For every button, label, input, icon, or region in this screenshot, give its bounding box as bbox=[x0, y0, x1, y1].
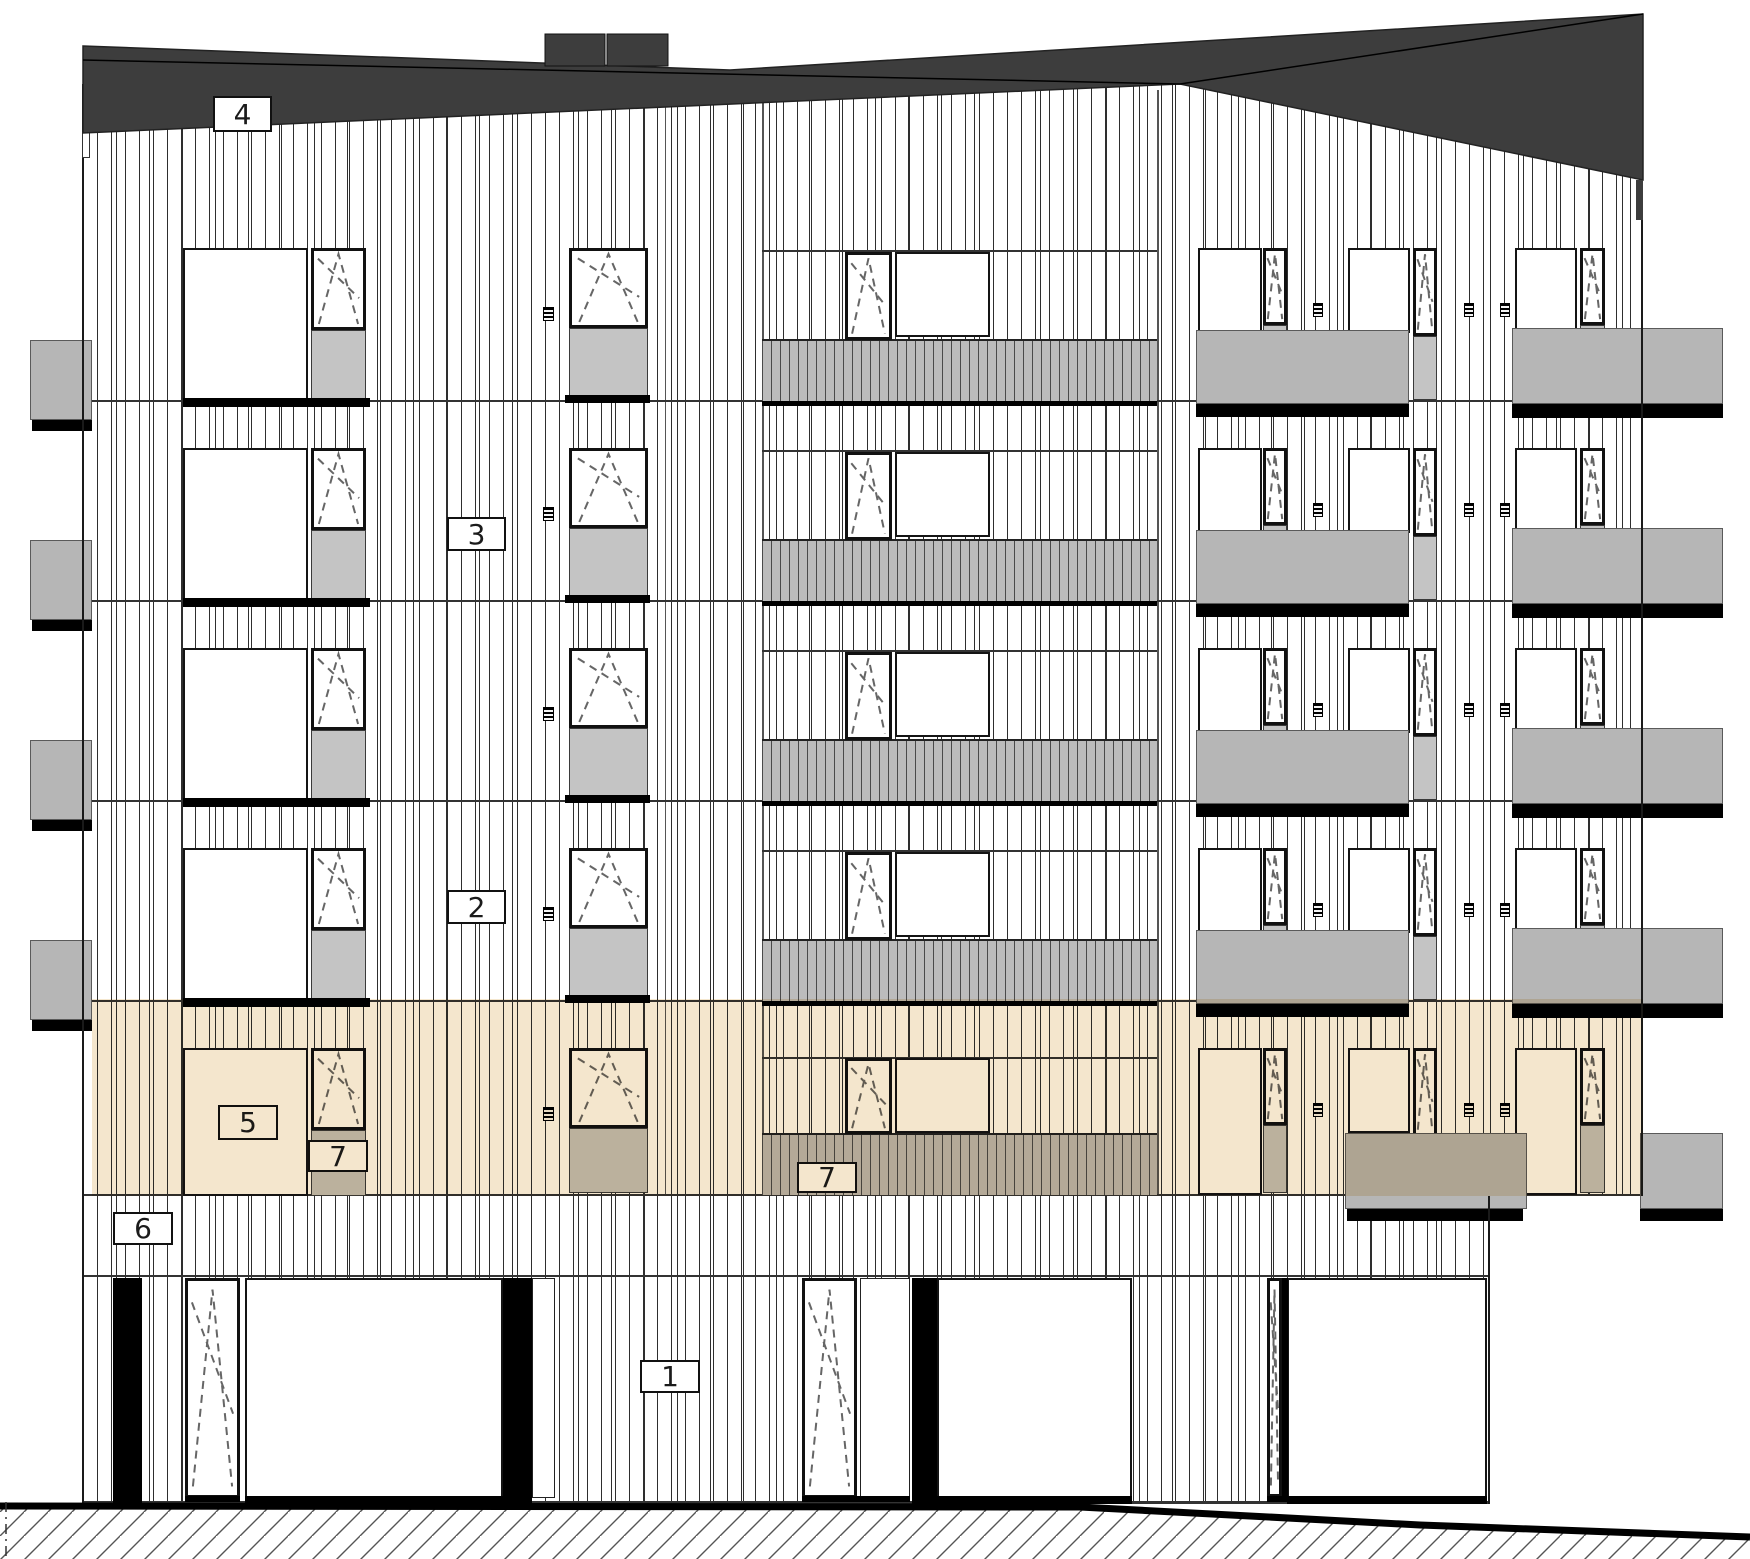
ground-hatch bbox=[0, 1506, 1750, 1559]
elevation-drawing: 43257761 bbox=[0, 0, 1750, 1559]
ground-terrain bbox=[0, 0, 1750, 1559]
